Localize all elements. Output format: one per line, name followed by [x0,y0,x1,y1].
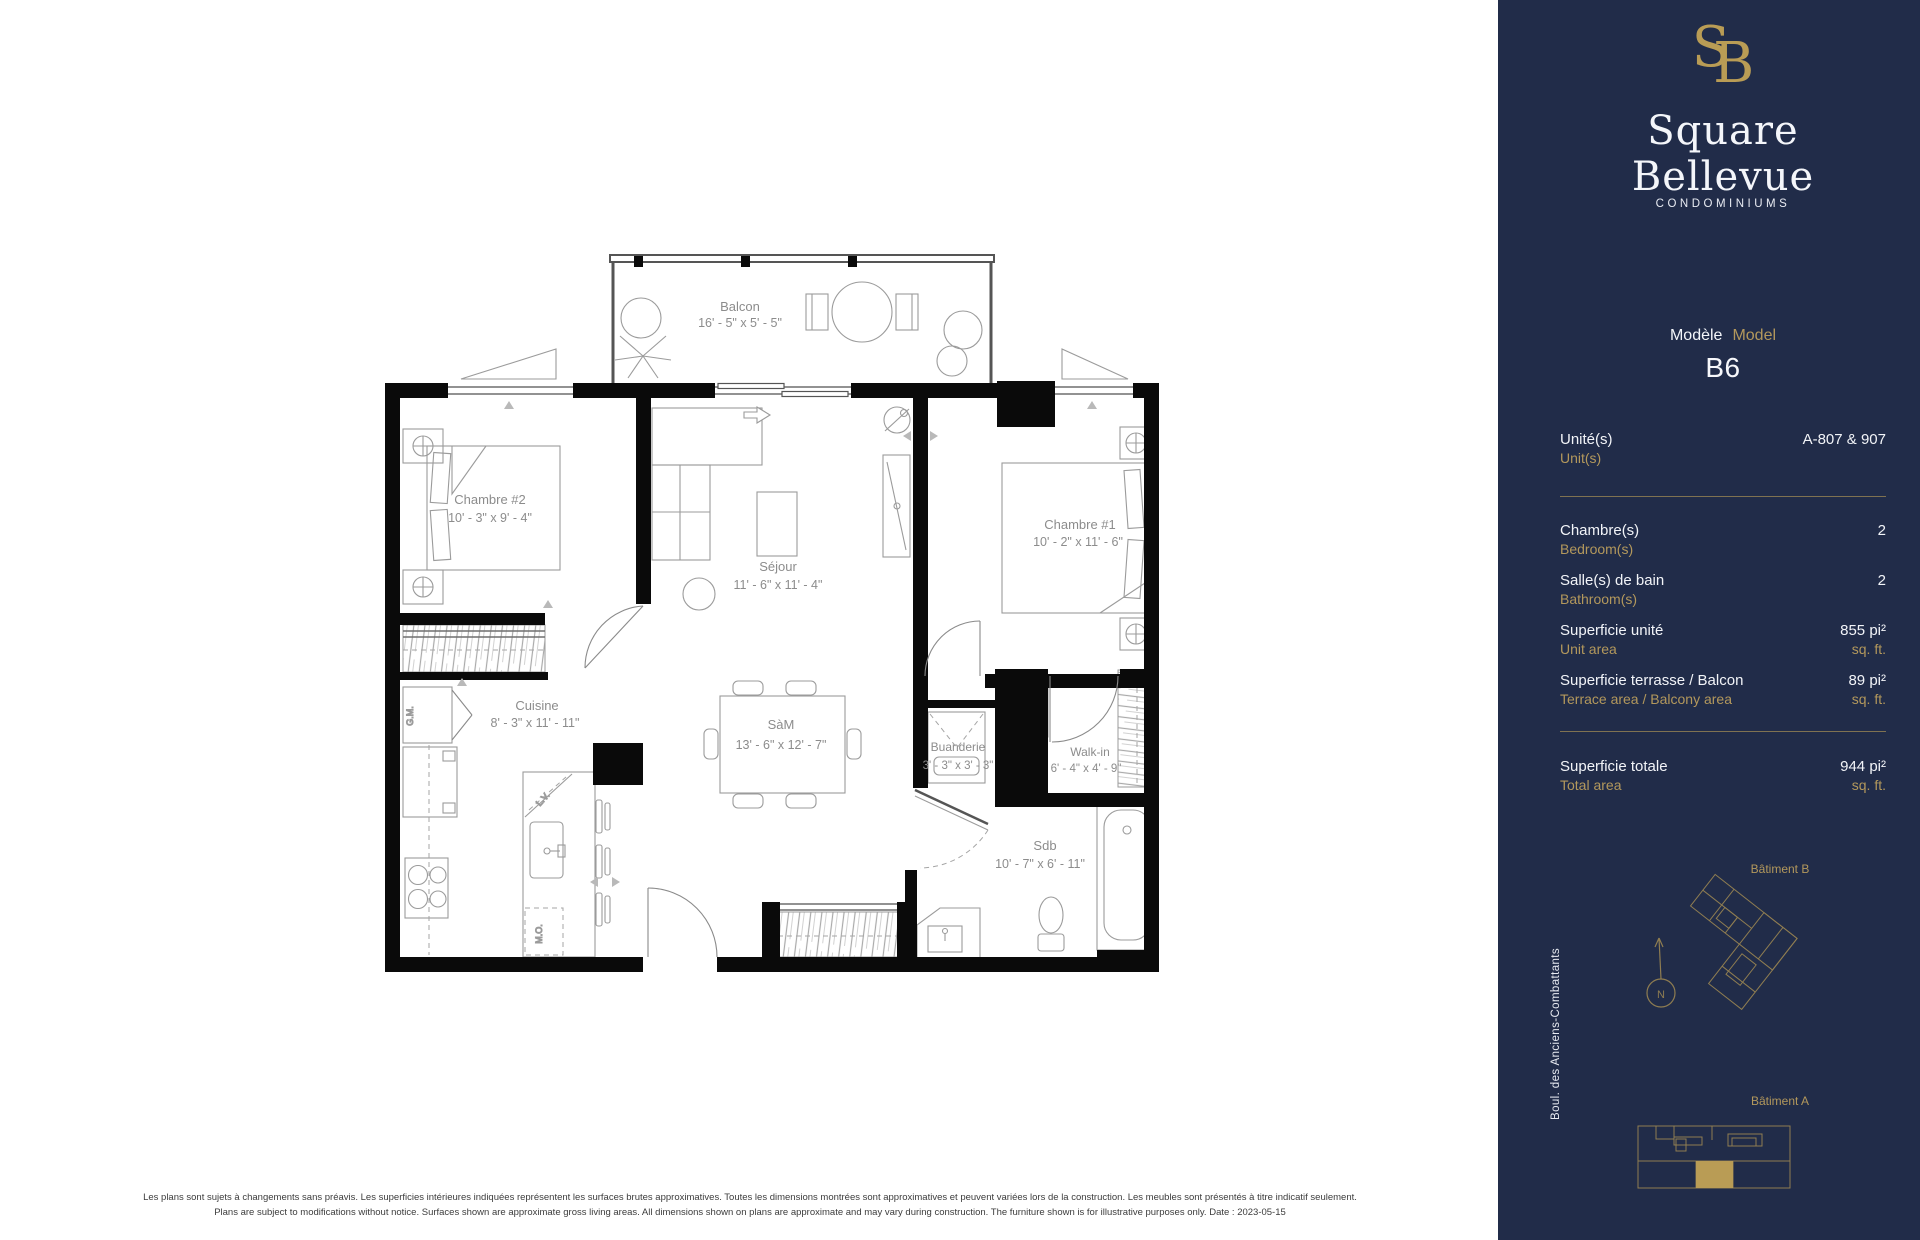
closet-hall [778,904,899,957]
unit-value: A-807 & 907 [1803,430,1886,449]
spec-row-terrace-area: Superficie terrasse / Balcon Terrace are… [1560,671,1886,708]
kitchen-cabinet [403,747,457,817]
unit-area-label-en: Unit area [1560,640,1663,658]
room-dims-cuisine: 8' - 3" x 11' - 11" [491,716,580,730]
door-bathroom [915,790,988,868]
divider [1560,731,1886,732]
room-label-buanderie: Buanderie [931,740,986,754]
total-area-unit: sq. ft. [1840,776,1886,794]
toilet [1038,897,1064,951]
room-label-chambre1: Chambre #1 [1044,517,1116,532]
building-a-label: Bâtiment A [1680,1094,1880,1108]
bedrooms-label-fr: Chambre(s) [1560,521,1639,540]
floor-plan: Balcon 16' - 5" x 5' - 5" [0,0,1498,1240]
divider [1560,496,1886,497]
building-b-label: Bâtiment B [1680,862,1880,876]
kitchen-island: L.V. M.O. [523,772,595,957]
terrace-area-label-fr: Superficie terrasse / Balcon [1560,671,1743,690]
model-label-fr: Modèle [1670,327,1722,344]
bed-chambre2 [427,446,560,570]
balcony: Balcon 16' - 5" x 5' - 5" [610,255,994,383]
page: Balcon 16' - 5" x 5' - 5" [0,0,1920,1240]
total-area-value: 944 pi² [1840,757,1886,776]
terrace-area-label-en: Terrace area / Balcony area [1560,690,1743,708]
spec-row-unit: Unité(s) Unit(s) A-807 & 907 [1560,430,1886,467]
window-chambre2 [448,349,573,394]
room-label-balcon: Balcon [720,299,760,314]
highlighted-unit [1696,1161,1733,1188]
fridge-label: G.M. [405,706,415,726]
bedrooms-value: 2 [1878,521,1886,540]
patio-door [715,384,851,397]
total-area-label-fr: Superficie totale [1560,757,1668,776]
room-dims-walkin: 6' - 4" x 4' - 9" [1051,763,1122,775]
pouf [683,578,715,610]
window-chambre1 [1055,349,1133,394]
compass-n: N [1657,989,1665,1001]
room-label-cuisine: Cuisine [515,698,558,713]
balcony-table [832,282,892,342]
room-label-sejour: Séjour [759,559,797,574]
building-b-diagram [1683,878,1823,1013]
compass-icon: N [1635,928,1687,1028]
room-label-sam: SàM [768,717,795,732]
arrow-icon [744,407,770,423]
monogram-b: B [1713,36,1754,92]
street-label: Boul. des Anciens-Combattants [1550,880,1562,1120]
terrace-area-value: 89 pi² [1848,671,1886,690]
model-label-en: Model [1732,327,1776,344]
unit-label-fr: Unité(s) [1560,430,1613,449]
closet-chambre2 [403,625,545,672]
vanity [917,908,980,957]
room-dims-balcon: 16' - 5" x 5' - 5" [698,316,782,330]
balcony-plants [615,298,982,378]
fridge: G.M. [403,687,472,743]
unit-area-value: 855 pi² [1840,621,1886,640]
wall-markers [457,401,1097,887]
brand-subtitle: CONDOMINIUMS [1560,198,1886,210]
bedrooms-label-en: Bedroom(s) [1560,540,1639,558]
ceiling-fixture-icon [884,407,910,433]
sofa [652,407,770,560]
terrace-area-unit: sq. ft. [1848,690,1886,708]
unit-area-label-fr: Superficie unité [1560,621,1663,640]
balcony-chair-right [896,294,918,330]
spec-row-bathrooms: Salle(s) de bain Bathroom(s) 2 [1560,571,1886,608]
room-dims-sejour: 11' - 6" x 11' - 4" [734,578,823,592]
room-dims-chambre1: 10' - 2" x 11' - 6" [1033,535,1123,549]
model-label: ModèleModel [1560,327,1886,345]
room-label-walkin: Walk-in [1070,745,1110,759]
island-stools [596,800,610,926]
disclaimer-line-en: Plans are subject to modifications witho… [120,1205,1380,1220]
tv-cabinet [883,455,910,557]
spec-row-bedrooms: Chambre(s) Bedroom(s) 2 [1560,521,1886,558]
building-a-diagram [1636,1124,1796,1192]
fixture-boxes-left [403,429,443,604]
bathrooms-label-en: Bathroom(s) [1560,590,1664,608]
bathrooms-value: 2 [1878,571,1886,590]
room-dims-buanderie: 3' - 3" x 3' - 3" [923,760,994,772]
door-chambre1 [925,621,980,676]
brand-name: Square Bellevue [1560,108,1886,200]
microwave-label: M.O. [534,924,544,944]
spec-row-unit-area: Superficie unité Unit area 855 pi² sq. f… [1560,621,1886,658]
unit-area-unit: sq. ft. [1840,640,1886,658]
unit-label-en: Unit(s) [1560,449,1613,467]
room-dims-sam: 13' - 6" x 12' - 7" [736,738,827,752]
stove [405,858,448,918]
door-entry [648,888,717,957]
coffee-table [757,492,797,556]
disclaimer: Les plans sont sujets à changements sans… [120,1190,1380,1220]
spec-row-total-area: Superficie totale Total area 944 pi² sq.… [1560,757,1886,794]
total-area-label-en: Total area [1560,776,1668,794]
room-dims-sdb: 10' - 7" x 6' - 11" [995,857,1085,871]
room-dims-chambre2: 10' - 3" x 9' - 4" [448,511,532,525]
sidebar: SB Square Bellevue CONDOMINIUMS ModèleMo… [1498,0,1920,1240]
bathrooms-label-fr: Salle(s) de bain [1560,571,1664,590]
door-chambre2 [585,606,643,668]
balcony-chair-left [806,294,828,330]
room-label-chambre2: Chambre #2 [454,492,526,507]
disclaimer-line-fr: Les plans sont sujets à changements sans… [120,1190,1380,1205]
dishwasher-label: L.V. [534,790,552,808]
brand-monogram-icon: SB [1560,20,1886,110]
model-value: B6 [1560,352,1886,384]
walls [385,381,1159,972]
room-label-sdb: Sdb [1033,838,1056,853]
